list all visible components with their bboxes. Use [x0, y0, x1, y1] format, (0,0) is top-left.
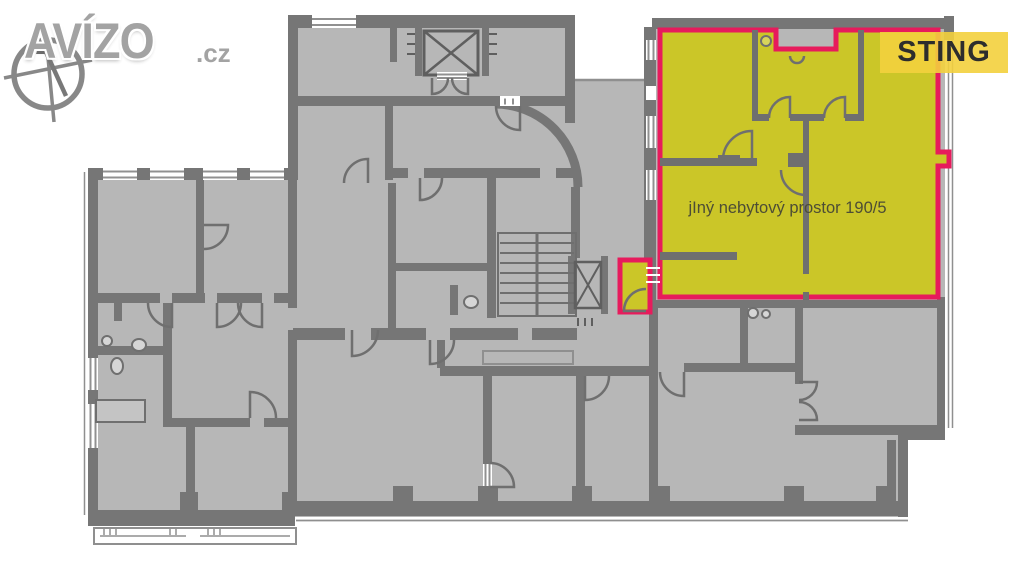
watermark-brand: AVÍZO: [24, 12, 154, 70]
terrace-ticks: [104, 528, 220, 535]
agency-badge: STING: [880, 32, 1008, 73]
floor-plan-page: AVÍZO .cz STING jIný nebytový prostor 19…: [0, 0, 1024, 584]
watermark-tld: .cz: [196, 38, 231, 69]
watermark-logo: AVÍZO .cz: [0, 0, 260, 140]
unit-label: jIný nebytový prostor 190/5: [655, 199, 920, 218]
